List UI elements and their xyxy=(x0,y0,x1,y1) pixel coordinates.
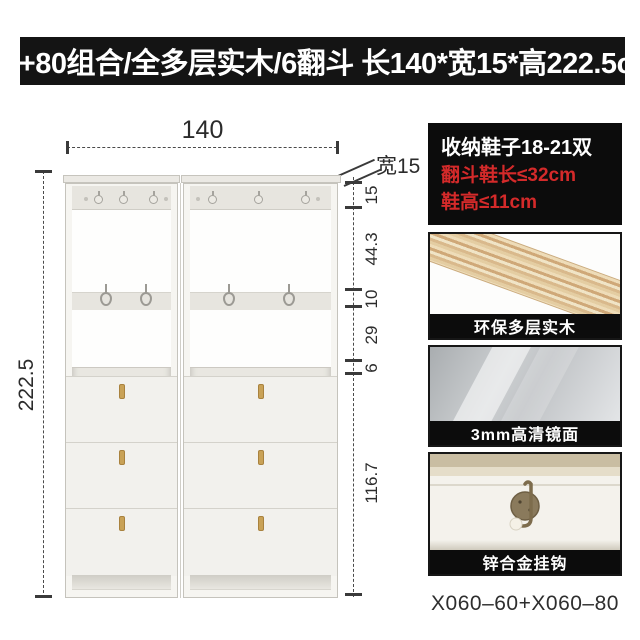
unit-divider-line xyxy=(180,183,181,598)
cabinet-unit-60 xyxy=(65,183,178,598)
segment-dimension-line xyxy=(353,177,354,597)
coat-hook-icon xyxy=(282,284,296,310)
coat-hook-icon xyxy=(222,284,236,310)
drawer-handle xyxy=(258,516,264,531)
kick-base xyxy=(72,575,171,590)
feature-card-plywood: 环保多层实木 xyxy=(428,232,622,340)
knob-dot-icon xyxy=(316,197,320,201)
plywood-photo xyxy=(430,234,620,314)
open-shelf-space xyxy=(72,310,171,367)
height-dimension-label: 222.5 xyxy=(18,340,36,430)
dim-tick xyxy=(345,181,362,184)
dim-tick xyxy=(336,141,339,154)
middle-hook-rail xyxy=(72,292,171,312)
drawer-handle xyxy=(119,516,125,531)
shoe-height-line: 鞋高≤11cm xyxy=(441,189,614,216)
segment-dim-label-drawers: 116.7 xyxy=(363,451,381,515)
width-dimension-line xyxy=(67,147,337,148)
zinc-hook-icon xyxy=(430,454,620,550)
dim-tick xyxy=(345,288,362,291)
model-code: X060–60+X060–80 xyxy=(420,592,630,616)
feature-label: 锌合金挂钩 xyxy=(430,550,620,574)
feature-label: 环保多层实木 xyxy=(430,314,620,338)
open-shelf-space xyxy=(72,210,171,292)
dim-tick xyxy=(35,595,52,598)
width-dimension-label: 140 xyxy=(155,116,250,145)
drawer-handle xyxy=(258,384,264,399)
drawer-handle xyxy=(119,450,125,465)
dim-tick xyxy=(35,170,52,173)
drawer-handle xyxy=(119,384,125,399)
kick-base xyxy=(190,575,331,590)
title-banner: 60+80组合/全多层实木/6翻斗 长140*宽15*高222.5cm xyxy=(20,37,625,85)
cabinet-top-board-left xyxy=(63,175,180,183)
drawer-handle xyxy=(258,450,264,465)
mirror-photo xyxy=(430,347,620,421)
depth-dimension-label: 宽15 xyxy=(376,150,420,180)
knob-dot-icon xyxy=(196,197,200,201)
coat-hook-icon xyxy=(139,284,153,310)
flip-drawer xyxy=(66,442,177,509)
cabinet-top-board-right xyxy=(181,175,341,183)
flip-drawer xyxy=(66,508,177,576)
flip-drawer xyxy=(184,442,337,509)
panel-shadow xyxy=(430,540,620,550)
height-dimension-line xyxy=(43,171,44,598)
feature-card-mirror: 3mm高清镜面 xyxy=(428,345,622,447)
hook-photo xyxy=(430,454,620,550)
feature-card-hook: 锌合金挂钩 xyxy=(428,452,622,576)
shoe-length-line: 翻斗鞋长≤32cm xyxy=(441,162,614,189)
dim-tick xyxy=(345,206,362,209)
middle-hook-rail xyxy=(190,292,331,312)
knob-dot-icon xyxy=(84,197,88,201)
open-shelf-space xyxy=(190,310,331,367)
dim-tick xyxy=(345,372,362,375)
open-shelf-space xyxy=(190,210,331,292)
coat-hook-icon xyxy=(99,284,113,310)
dim-tick xyxy=(345,305,362,308)
knob-dot-icon xyxy=(164,197,168,201)
dim-tick xyxy=(345,593,362,596)
product-infographic: 60+80组合/全多层实木/6翻斗 长140*宽15*高222.5cm 140 … xyxy=(0,0,640,640)
coat-hook-icon xyxy=(207,191,219,207)
feature-label: 3mm高清镜面 xyxy=(430,421,620,445)
top-hook-rail xyxy=(72,186,171,210)
coat-hook-icon xyxy=(148,191,160,207)
capacity-stat-box: 收纳鞋子18-21双 翻斗鞋长≤32cm 鞋高≤11cm xyxy=(428,123,622,225)
cabinet-unit-80 xyxy=(183,183,338,598)
capacity-line: 收纳鞋子18-21双 xyxy=(441,134,614,162)
coat-hook-icon xyxy=(253,191,265,207)
plywood-plank-icon xyxy=(430,234,620,314)
flip-drawer xyxy=(66,376,177,443)
flip-drawer xyxy=(184,376,337,443)
flip-drawer xyxy=(184,508,337,576)
coat-hook-icon xyxy=(300,191,312,207)
coat-hook-icon xyxy=(118,191,130,207)
product-title: 60+80组合/全多层实木/6翻斗 长140*宽15*高222.5cm xyxy=(0,40,640,82)
coat-hook-icon xyxy=(93,191,105,207)
segment-dim-label-shelf: 6 xyxy=(363,336,381,400)
dim-tick xyxy=(345,359,362,362)
dim-tick xyxy=(66,141,69,154)
top-hook-rail xyxy=(190,186,331,210)
